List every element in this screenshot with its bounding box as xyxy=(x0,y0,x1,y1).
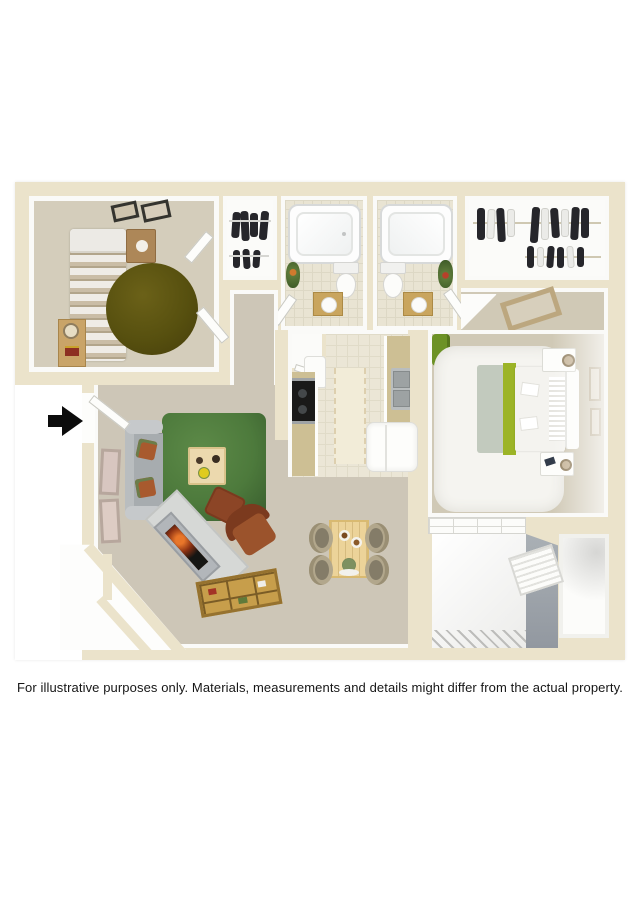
flower-bowl xyxy=(198,467,210,479)
hanging-clothes xyxy=(557,247,564,268)
floor-plan xyxy=(15,182,625,660)
round-rug xyxy=(106,263,198,355)
bathtub-basin xyxy=(388,212,445,256)
decor-item xyxy=(65,346,79,356)
wall-art-frame xyxy=(111,200,140,222)
phone xyxy=(544,457,556,467)
plate xyxy=(351,537,362,548)
door-bedroom-2-closet xyxy=(184,231,214,263)
master-bed xyxy=(477,363,603,455)
wall-central-spine xyxy=(410,330,428,648)
bathtub xyxy=(380,204,453,264)
wall-kitchen-west xyxy=(275,330,288,440)
closet-rod xyxy=(229,255,269,257)
hanging-clothes xyxy=(577,247,584,267)
plate xyxy=(339,530,350,541)
master-bedroom-entry xyxy=(461,288,608,330)
sink-vanity xyxy=(313,292,343,316)
patio-railing xyxy=(432,630,526,648)
cup xyxy=(212,455,220,463)
hanging-clothes xyxy=(231,212,241,238)
desk-lamp xyxy=(63,323,79,339)
decor-item xyxy=(257,580,266,587)
burner xyxy=(298,389,307,398)
bathroom-1 xyxy=(281,196,367,330)
hanging-clothes xyxy=(477,208,485,240)
sink-basin xyxy=(411,297,427,313)
sink-vanity xyxy=(403,292,433,316)
hanging-clothes xyxy=(233,250,240,268)
hanging-clothes xyxy=(537,247,544,267)
nightstand xyxy=(126,229,156,263)
chair-seat xyxy=(369,560,383,580)
table-lamp xyxy=(562,354,575,367)
wall-art-frame xyxy=(589,367,601,401)
headboard xyxy=(565,369,579,449)
bedroom-2-closet xyxy=(223,196,277,280)
sink-basin xyxy=(393,371,410,388)
plant xyxy=(286,262,300,288)
disclaimer-text: For illustrative purposes only. Material… xyxy=(0,680,640,695)
sink-basin xyxy=(393,390,410,407)
master-bedroom xyxy=(428,330,608,517)
bed-pillow xyxy=(519,416,538,431)
hanging-clothes xyxy=(496,208,506,242)
hanging-clothes xyxy=(541,208,549,240)
hanging-clothes xyxy=(240,211,250,241)
table-lamp xyxy=(560,459,572,471)
plant xyxy=(438,260,453,288)
hanging-clothes xyxy=(530,207,540,243)
patio xyxy=(432,534,526,648)
toilet-bowl xyxy=(383,273,403,298)
hallway xyxy=(230,290,278,386)
nightstand xyxy=(542,348,576,372)
chair-seat xyxy=(315,560,329,580)
dining-chair xyxy=(365,523,389,553)
bathtub-drain xyxy=(342,232,346,236)
kitchen-runner-rug xyxy=(334,368,366,464)
hanging-clothes xyxy=(561,209,569,237)
counter-right xyxy=(384,336,412,432)
decor-item xyxy=(238,597,248,604)
hanging-clothes xyxy=(527,246,534,268)
dining-chair xyxy=(309,555,333,585)
bed-blanket xyxy=(477,365,505,453)
hanging-clothes xyxy=(507,209,515,237)
refrigerator xyxy=(366,422,418,472)
floor-mirror-frame xyxy=(500,286,563,332)
open-door xyxy=(461,294,497,330)
nightstand xyxy=(540,452,574,476)
porch-wall-stub xyxy=(103,554,112,600)
desk xyxy=(58,319,86,367)
wall-art-frame xyxy=(590,408,601,436)
coffee-table xyxy=(188,447,226,485)
stove xyxy=(292,378,315,424)
decor-item xyxy=(136,240,148,252)
bathroom-2 xyxy=(373,196,457,330)
hanging-clothes xyxy=(570,207,580,240)
arrow-head xyxy=(62,406,83,436)
hanging-clothes xyxy=(252,250,260,268)
sink-basin xyxy=(321,297,337,313)
entry-arrow-icon xyxy=(48,406,96,436)
bed-pillows xyxy=(70,229,126,253)
fridge-door-line xyxy=(385,425,387,471)
counter-left xyxy=(292,372,318,476)
wall-art-frame xyxy=(99,449,121,496)
hanging-clothes xyxy=(550,208,560,238)
wall-art-frame xyxy=(99,499,121,544)
bed-pillow xyxy=(520,382,540,397)
patio-sliding-door xyxy=(428,517,526,534)
hanging-clothes xyxy=(566,246,575,268)
hanging-clothes xyxy=(259,211,269,241)
wall-art-frame xyxy=(140,199,171,222)
serving-dish xyxy=(339,569,359,576)
sofa-armrest xyxy=(125,420,163,434)
burner xyxy=(298,405,307,414)
chair-seat xyxy=(369,528,383,548)
dining-table xyxy=(329,520,369,578)
decor-item xyxy=(208,588,217,595)
hanging-clothes xyxy=(242,249,250,269)
bedroom-2 xyxy=(29,196,219,372)
hanging-clothes xyxy=(486,209,496,239)
bathtub xyxy=(288,204,361,264)
storage-closet xyxy=(559,534,609,638)
dining-chair xyxy=(365,555,389,585)
cup xyxy=(196,457,203,464)
walk-in-closet xyxy=(465,196,609,280)
hanging-clothes xyxy=(250,213,258,237)
bed-texture xyxy=(549,377,565,441)
hanging-clothes xyxy=(546,246,555,268)
door-bedroom-2 xyxy=(196,307,229,344)
dining-chair xyxy=(309,523,333,553)
hanging-clothes xyxy=(581,208,589,238)
closet-rod xyxy=(229,220,271,222)
throw-pillow xyxy=(135,438,158,461)
throw-pillow xyxy=(134,476,156,498)
chair-seat xyxy=(315,528,329,548)
floor-plan-page: For illustrative purposes only. Material… xyxy=(0,0,640,905)
